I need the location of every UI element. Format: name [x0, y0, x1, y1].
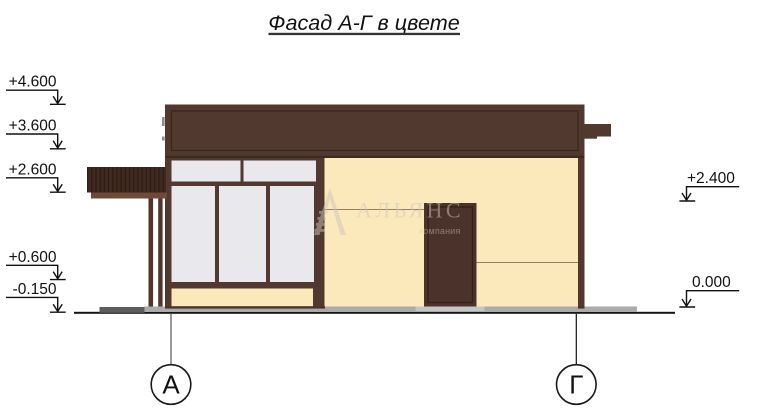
svg-text:А: А	[162, 370, 180, 400]
svg-text:Фасад А-Г в цвете: Фасад А-Г в цвете	[268, 10, 459, 35]
svg-text:0.000: 0.000	[692, 274, 731, 291]
svg-text:+2.400: +2.400	[687, 170, 735, 187]
svg-text:Г: Г	[569, 370, 583, 400]
svg-text:компания: компания	[419, 226, 461, 236]
svg-text:+2.600: +2.600	[9, 161, 57, 178]
svg-text:+4.600: +4.600	[9, 74, 57, 91]
svg-text:АЛЬЯНС: АЛЬЯНС	[356, 198, 464, 223]
svg-text:-0.150: -0.150	[13, 281, 57, 298]
svg-text:+0.600: +0.600	[9, 249, 57, 266]
svg-text:+3.600: +3.600	[9, 118, 57, 135]
